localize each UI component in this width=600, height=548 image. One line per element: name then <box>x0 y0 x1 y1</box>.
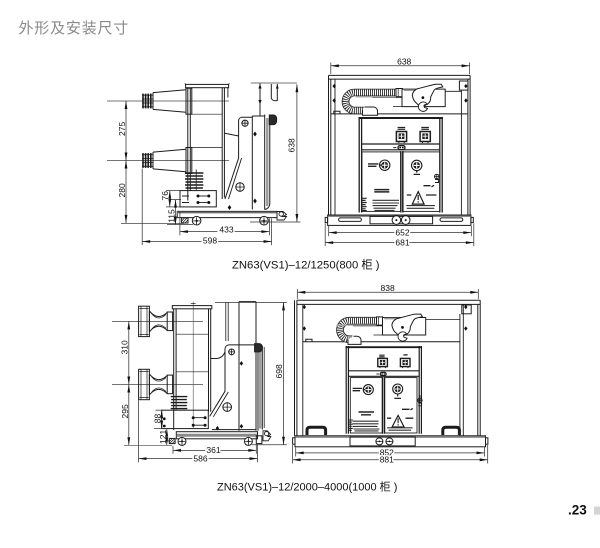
svg-text:88: 88 <box>152 413 162 423</box>
svg-text:838: 838 <box>381 283 395 293</box>
svg-text:586: 586 <box>193 453 207 463</box>
svg-text:280: 280 <box>117 183 127 197</box>
svg-text:.23: .23 <box>568 503 587 518</box>
svg-text:638: 638 <box>397 56 411 66</box>
svg-text:275: 275 <box>117 122 127 136</box>
svg-text:ZN63(VS1)–12/1250(800 柜 ): ZN63(VS1)–12/1250(800 柜 ) <box>232 258 380 271</box>
svg-text:361: 361 <box>206 445 220 455</box>
svg-text:ZN63(VS1)–12/2000–4000(1000 柜: ZN63(VS1)–12/2000–4000(1000 柜 ) <box>217 481 397 494</box>
svg-text:652: 652 <box>395 227 409 237</box>
svg-text:310: 310 <box>120 340 130 354</box>
svg-text:115: 115 <box>166 209 176 223</box>
svg-text:121: 121 <box>158 430 168 444</box>
svg-text:598: 598 <box>203 236 217 246</box>
svg-text:698: 698 <box>274 364 284 378</box>
svg-text:76: 76 <box>160 191 170 201</box>
svg-text:681: 681 <box>395 237 409 247</box>
svg-text:881: 881 <box>380 455 394 465</box>
svg-text:433: 433 <box>219 225 233 235</box>
svg-text:638: 638 <box>287 138 297 152</box>
svg-text:295: 295 <box>120 404 130 418</box>
